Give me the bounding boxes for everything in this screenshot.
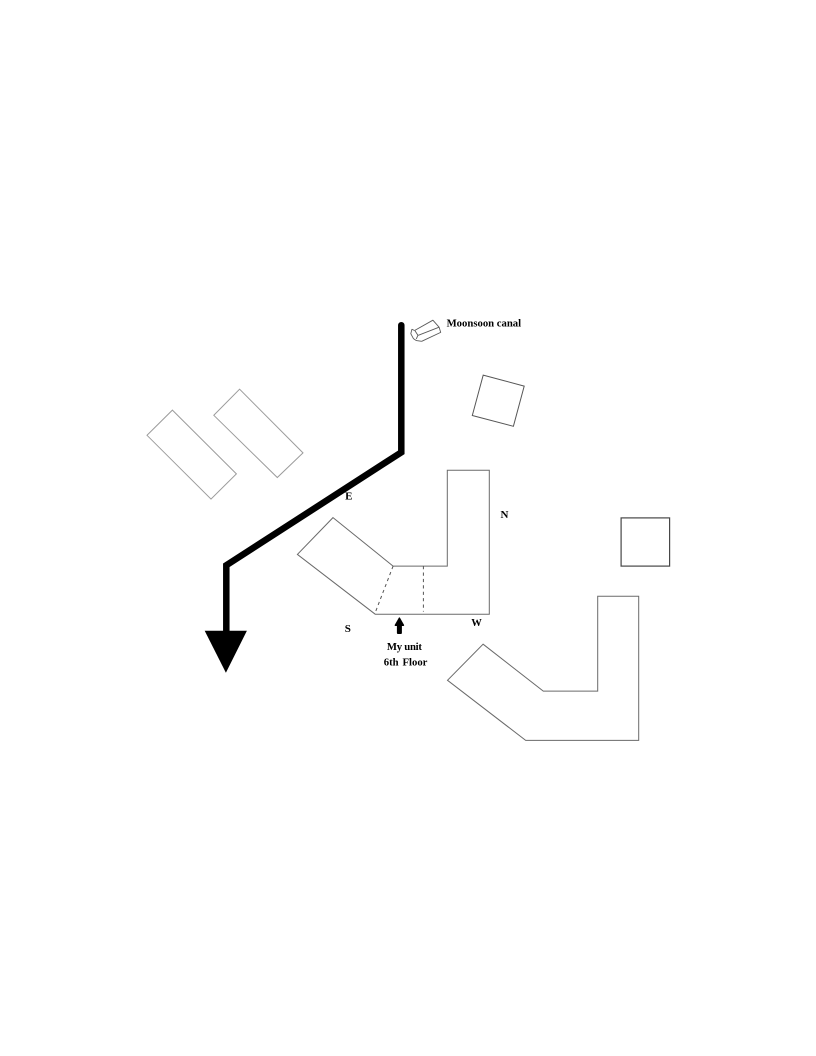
svg-text:E: E (345, 491, 352, 503)
svg-text:6th Floor: 6th Floor (384, 656, 428, 668)
svg-text:My unit: My unit (387, 641, 422, 653)
svg-text:N: N (501, 509, 509, 521)
svg-text:S: S (345, 623, 351, 635)
svg-text:Moonsoon canal: Moonsoon canal (447, 318, 522, 330)
svg-text:W: W (471, 618, 482, 629)
